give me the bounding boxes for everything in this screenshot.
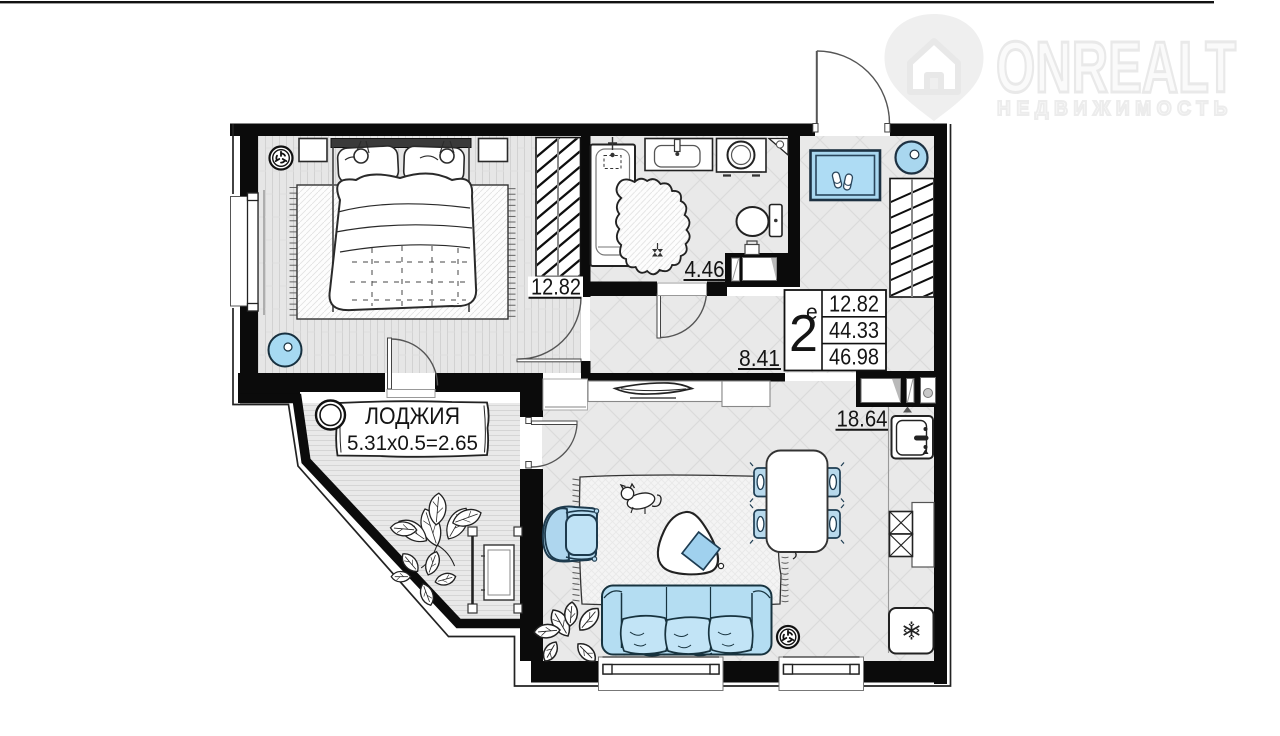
svg-text:НЕДВИЖИМОСТЬ: НЕДВИЖИМОСТЬ	[997, 98, 1233, 120]
svg-text:46.98: 46.98	[829, 344, 879, 370]
svg-text:12.82: 12.82	[531, 274, 581, 300]
svg-text:8.41: 8.41	[739, 345, 780, 371]
svg-text:е: е	[806, 301, 818, 324]
svg-text:18.64: 18.64	[837, 406, 888, 432]
svg-text:5.31х0.5=2.65: 5.31х0.5=2.65	[347, 431, 478, 455]
svg-text:12.82: 12.82	[829, 291, 879, 317]
svg-text:ONREALT: ONREALT	[996, 28, 1236, 108]
svg-text:ЛОДЖИЯ: ЛОДЖИЯ	[365, 403, 460, 430]
svg-text:44.33: 44.33	[829, 317, 879, 343]
svg-text:4.46: 4.46	[685, 256, 725, 282]
